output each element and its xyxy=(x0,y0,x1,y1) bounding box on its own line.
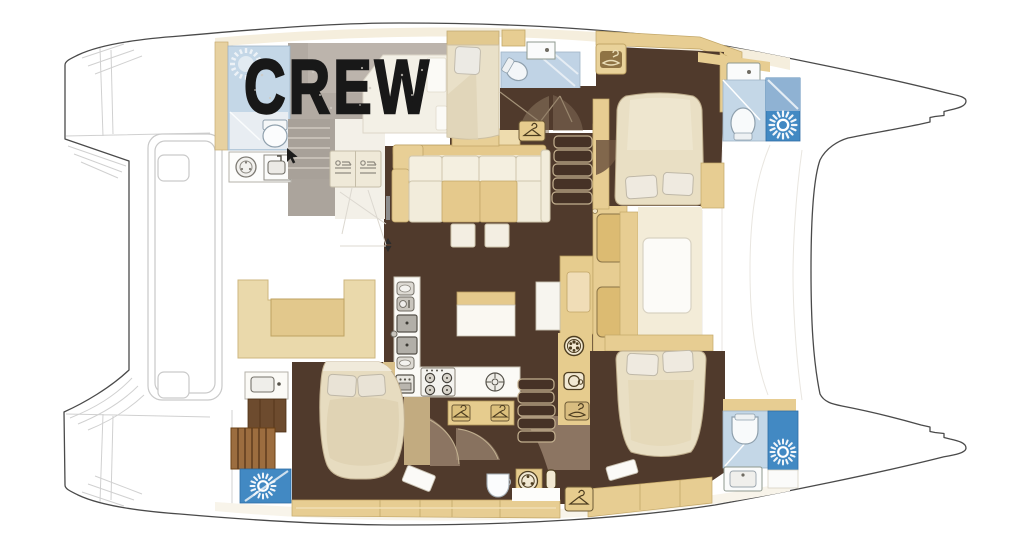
svg-text:CREW: CREW xyxy=(244,45,432,130)
